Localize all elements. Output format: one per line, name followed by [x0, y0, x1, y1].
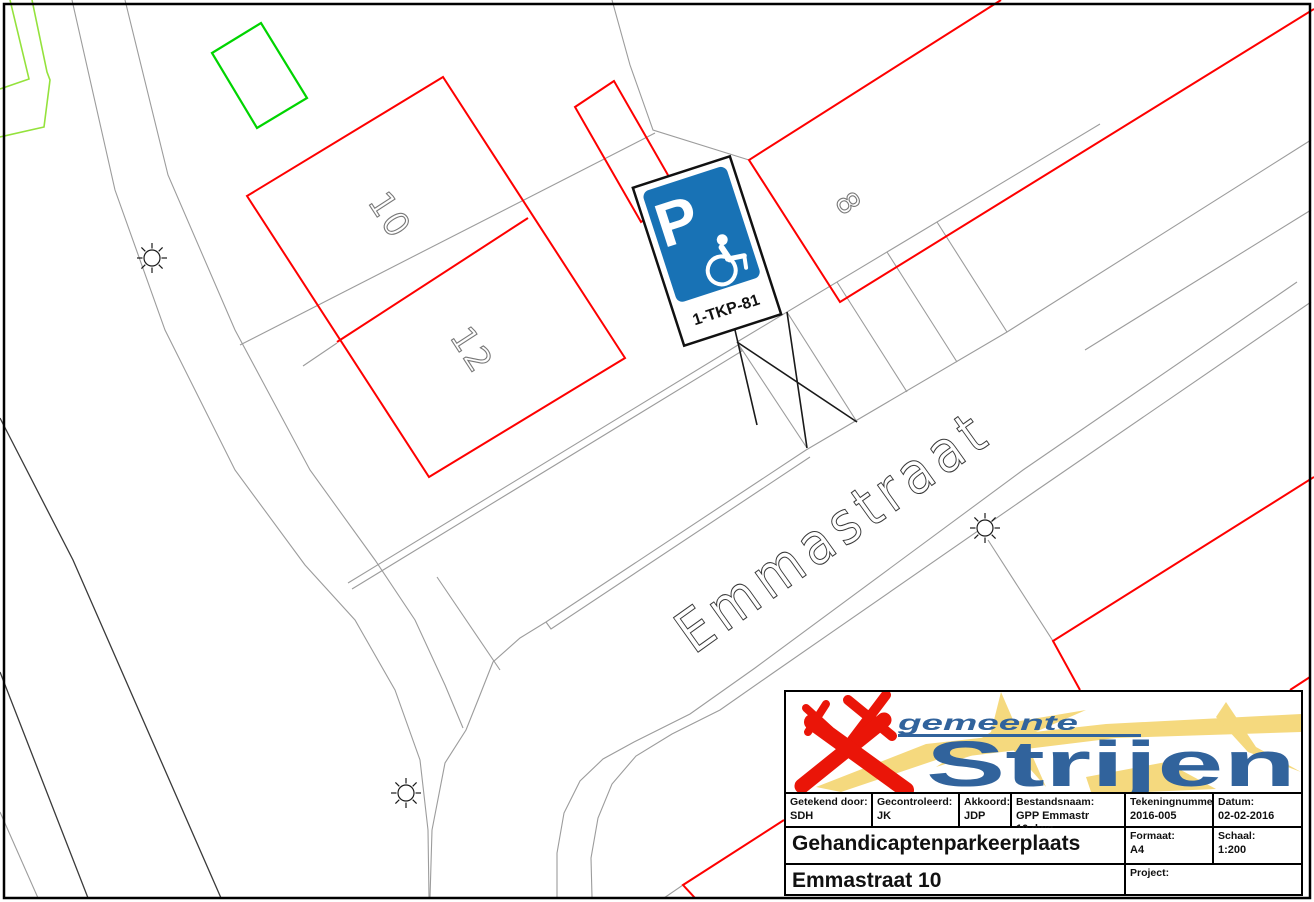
cell-project: Project:: [1126, 865, 1301, 894]
building-8-outline: [749, 0, 1314, 302]
dark-lines-layer: [0, 418, 221, 898]
checked-by-label: Gecontroleerd:: [873, 794, 958, 809]
street-name-label: Emmastraat: [663, 396, 1004, 666]
drawing-number-value: 2016-005: [1126, 809, 1212, 823]
property-line: [240, 133, 655, 345]
building-bottomright-fragment: [1290, 677, 1310, 690]
date-label: Datum:: [1214, 794, 1301, 809]
disabled-parking-sign: P 1-TKP-81: [633, 156, 781, 345]
format-value: A4: [1126, 843, 1212, 857]
drawing-subtitle: Emmastraat 10: [786, 865, 1124, 893]
lamppost-icon: [970, 513, 1000, 543]
strijen-logo-graphic: gemeente Strijen: [786, 692, 1301, 792]
scale-label: Schaal:: [1214, 828, 1301, 843]
bottomright-line: [664, 885, 683, 898]
sign-post-line: [735, 330, 757, 425]
path-to-lamp: [988, 540, 1053, 641]
cell-format: Formaat: A4: [1126, 828, 1214, 865]
bottomleft-line: [0, 812, 38, 898]
filename-label: Bestandsnaam:: [1012, 794, 1124, 809]
municipality-logo: gemeente Strijen: [786, 692, 1301, 794]
approved-by-value: JDP: [960, 809, 1010, 823]
cell-checked-by: Gecontroleerd: JK: [873, 794, 960, 828]
topright-line: [1085, 210, 1311, 350]
project-value: [1126, 880, 1301, 881]
house-number-8: 8: [827, 186, 867, 221]
scale-value: 1:200: [1214, 843, 1301, 857]
date-value: 02-02-2016: [1214, 809, 1301, 823]
checked-by-value: JK: [873, 809, 958, 823]
cell-drawing-number: Tekeningnummer: 2016-005: [1126, 794, 1214, 828]
house-number-10: 10: [360, 185, 419, 246]
lamppost-icon: [137, 243, 167, 273]
vegetation-outlines: [0, 0, 50, 137]
cell-date: Datum: 02-02-2016: [1214, 794, 1301, 828]
green-plot-rect: [212, 23, 307, 128]
parking-bay-cross: [737, 312, 857, 448]
cell-title-2: Emmastraat 10: [786, 865, 1126, 894]
logo-word-strijen: Strijen: [926, 728, 1296, 792]
cell-approved-by: Akkoord: JDP: [960, 794, 1012, 828]
building-bottomright-sw-edge: [683, 820, 784, 898]
drawing-number-label: Tekeningnummer:: [1126, 794, 1212, 809]
format-label: Formaat:: [1126, 828, 1212, 843]
road-east-edge: [125, 0, 463, 728]
corner-segment: [437, 577, 500, 670]
building-bottomright-outline: [1053, 477, 1314, 690]
parcel-connector: [303, 343, 337, 366]
building-10-12-divider: [337, 218, 528, 342]
road-west-edge: [72, 0, 429, 898]
cell-drawn-by: Getekend door: SDH: [786, 794, 873, 828]
cad-drawing-page: Emmastraat 10 12 8 P 1-TKP-81: [0, 0, 1314, 902]
parcel-boundary-top: [612, 0, 749, 160]
cell-filename: Bestandsnaam: GPP Emmastr 10.dwg: [1012, 794, 1126, 828]
title-block: gemeente Strijen Getekend door: SDH Geco…: [784, 690, 1303, 896]
drawn-by-label: Getekend door:: [786, 794, 871, 809]
parking-bays-nw-edge: [737, 124, 1100, 342]
cell-scale: Schaal: 1:200: [1214, 828, 1301, 865]
drawing-title: Gehandicaptenparkeerplaats: [786, 828, 1124, 856]
nw-sidewalk-pair: [348, 345, 742, 589]
project-label: Project:: [1126, 865, 1301, 880]
approved-by-label: Akkoord:: [960, 794, 1010, 809]
lamppost-icon: [391, 778, 421, 808]
cell-title-1: Gehandicaptenparkeerplaats: [786, 828, 1126, 865]
drawn-by-value: SDH: [786, 809, 871, 823]
house-number-12: 12: [442, 320, 501, 381]
